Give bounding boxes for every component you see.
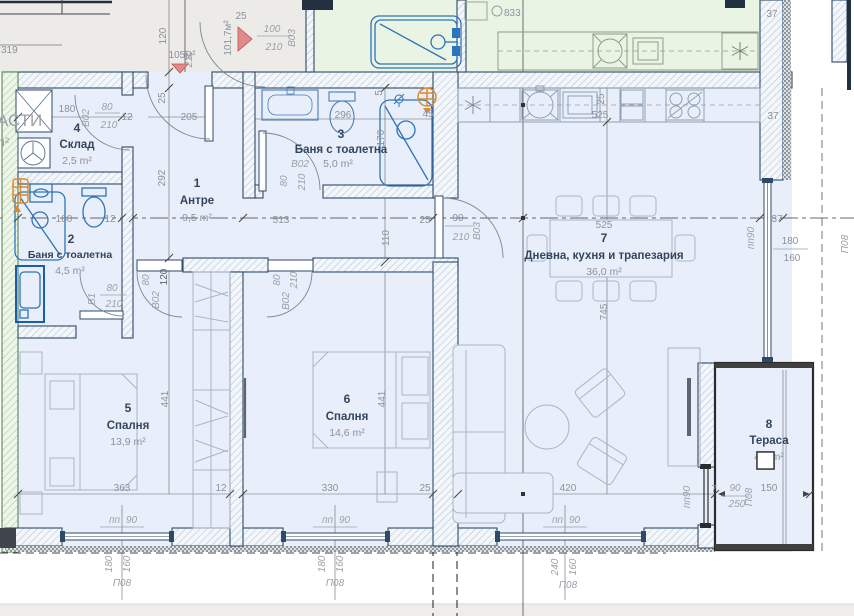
dim-7-terrace: 7: [711, 484, 717, 495]
floor-plan-page: 319 АСТИ m² 120 105м² 25 101,7м² 100 210…: [0, 0, 854, 616]
room-bed5-name: Спалня: [107, 420, 150, 432]
neighbor-dim-37-mid: 37: [767, 111, 779, 122]
bed5-door-code: B02: [151, 291, 162, 309]
room-bed6-number: 6: [344, 392, 351, 406]
neighbor-bathroom-floor: [313, 0, 466, 72]
dim-120-hall: 120: [159, 268, 170, 285]
room-bed5-area: 13,9 m²: [110, 436, 146, 448]
dim-k525: 525: [592, 110, 609, 121]
common-partial-label: АСТИ: [0, 111, 42, 130]
dim-37-right: 37: [771, 214, 783, 225]
bed5-window-pp: пп: [109, 515, 121, 526]
common-unit: m²: [0, 134, 10, 149]
living-door-code: B03: [472, 222, 483, 240]
outer-wall-edge: [847, 0, 851, 90]
terrace-door-pp: пп90: [682, 486, 693, 509]
bath2-door-width: 80: [106, 283, 118, 294]
bed6-window-height: 160: [335, 555, 346, 572]
bed6-window-width: 180: [317, 555, 328, 572]
living-door-width: 90: [452, 213, 464, 224]
bath2-door-height: 210: [105, 299, 123, 310]
window-living-right: [762, 178, 773, 362]
bed6-window-pp: пп: [322, 515, 334, 526]
dim-525: 525: [596, 220, 613, 231]
living-window-height: 160: [568, 558, 579, 575]
entry-door-leaf: [205, 86, 213, 141]
bed6-door-height: 210: [289, 271, 300, 289]
room-bath2-number: 2: [68, 232, 75, 246]
bed6-door-width: 80: [272, 274, 283, 286]
common-dim-319: 319: [1, 45, 18, 56]
dim-180-bath2: 180: [56, 214, 73, 225]
right-window-height: 160: [784, 253, 801, 264]
dim-363: 363: [114, 483, 131, 494]
dim-110: 110: [381, 230, 392, 246]
room-living-number: 7: [601, 231, 608, 245]
room-bed5-number: 5: [125, 401, 132, 415]
window-bed5: [60, 531, 174, 542]
room-hall-area: 9,5 m²: [182, 212, 212, 224]
bath3-door-height: 210: [297, 173, 308, 191]
bath3-door-code: B02: [291, 159, 309, 170]
window-bed6: [281, 531, 390, 542]
room-bath2-area: 4,5 m²: [55, 265, 85, 277]
living-door-leaf: [435, 196, 443, 258]
storage-door-width: 80: [101, 102, 113, 113]
room-terrace-name: Тераса: [749, 435, 789, 447]
bed6-door-leaf: [268, 260, 313, 271]
dim-25-rot: 25: [157, 92, 168, 104]
bath3-door-leaf: [259, 131, 266, 191]
dim-330: 330: [322, 483, 339, 494]
dim-296: 296: [335, 110, 352, 121]
dim-5: 5: [374, 90, 385, 96]
terrace-door-code: П08: [744, 487, 755, 506]
dim-25-hall: 25: [419, 215, 431, 226]
room-storage-name: Склад: [59, 139, 95, 151]
common-door-code: B03: [287, 29, 298, 47]
dim-441-bed6: 441: [377, 390, 388, 407]
living-window-pp: пп: [552, 515, 564, 526]
common-door-width: 100: [264, 24, 281, 35]
bath2-door-code: B1: [87, 293, 98, 305]
washer-storage: [18, 138, 50, 168]
room-bath2-name: Баня с тоалетна: [28, 249, 113, 261]
dim-180-storage: 180: [59, 104, 76, 115]
dim-420: 420: [560, 483, 577, 494]
living-window-width: 240: [550, 558, 561, 576]
entry-door-height: 210: [184, 50, 195, 68]
room-bath3-area: 5,0 m²: [323, 158, 353, 170]
storage-door-height: 210: [100, 120, 118, 131]
terrace-table-overlay: [757, 452, 774, 469]
common-door-height: 210: [265, 42, 283, 53]
dim-45: 45: [422, 109, 434, 120]
dim-12-bed5: 12: [215, 483, 227, 494]
dim-12-storage: 12: [121, 112, 133, 123]
right-window-code: П08: [840, 234, 851, 253]
bed6-window-90: 90: [339, 515, 351, 526]
right-window-pp90: пп90: [746, 227, 757, 250]
bath3-door-width: 80: [279, 175, 290, 187]
right-exterior-wall: [760, 0, 783, 180]
living-window-code: П08: [559, 580, 578, 591]
terrace-door-width: 90: [729, 483, 741, 494]
room-hall-name: Антре: [180, 195, 214, 207]
common-area-rot: 101,7м²: [223, 20, 234, 56]
common-dim-25: 25: [235, 11, 247, 22]
dim-292: 292: [157, 169, 168, 186]
room-living-area: 36,0 m²: [586, 266, 622, 278]
bed5-window-height: 160: [122, 555, 133, 572]
storage-door-code: B02: [81, 109, 92, 127]
dim-205: 205: [181, 112, 198, 123]
room-bath3-name: Баня с тоалетна: [295, 144, 388, 156]
common-dim-120: 120: [158, 27, 169, 44]
bed5-window-90: 90: [126, 515, 138, 526]
window-living-bottom: [495, 531, 646, 542]
bed5-window-code: П08: [113, 578, 132, 589]
room-hall-number: 1: [194, 176, 201, 190]
dim-k25: 25: [596, 93, 607, 105]
right-window-width: 180: [782, 236, 799, 247]
room-storage-area: 2,5 m²: [62, 155, 92, 167]
room-living-name: Дневна, кухня и трапезария: [524, 250, 683, 262]
dim-25-bed6: 25: [419, 483, 431, 494]
bed6-window-code: П08: [326, 578, 345, 589]
corner-block: [0, 528, 16, 548]
living-door-height: 210: [452, 232, 470, 243]
room-storage-number: 4: [74, 121, 81, 135]
neighbor-dim-37-top: 37: [766, 9, 778, 20]
neighbor-dim-833: 833: [504, 8, 521, 19]
dim-12-bath2: 12: [104, 214, 116, 225]
bottom-strip: [0, 604, 854, 616]
dim-441-bed5: 441: [160, 390, 171, 407]
room-bath3-number: 3: [338, 127, 345, 141]
dim-745: 745: [599, 303, 610, 320]
room-bed6-name: Спалня: [326, 411, 369, 423]
floor-plan-drawing: 319 АСТИ m² 120 105м² 25 101,7м² 100 210…: [0, 0, 854, 616]
bed5-door-width: 80: [141, 274, 152, 286]
bath2-door-leaf: [80, 311, 123, 319]
living-window-90: 90: [569, 515, 581, 526]
dim-513: 513: [273, 215, 290, 226]
bed5-window-width: 180: [104, 555, 115, 572]
dim-150: 150: [761, 483, 778, 494]
room-bed6-area: 14,6 m²: [329, 427, 365, 439]
dim-170: 170: [376, 129, 387, 146]
room-terrace-number: 8: [766, 417, 773, 431]
bed6-door-code: B02: [281, 292, 292, 310]
